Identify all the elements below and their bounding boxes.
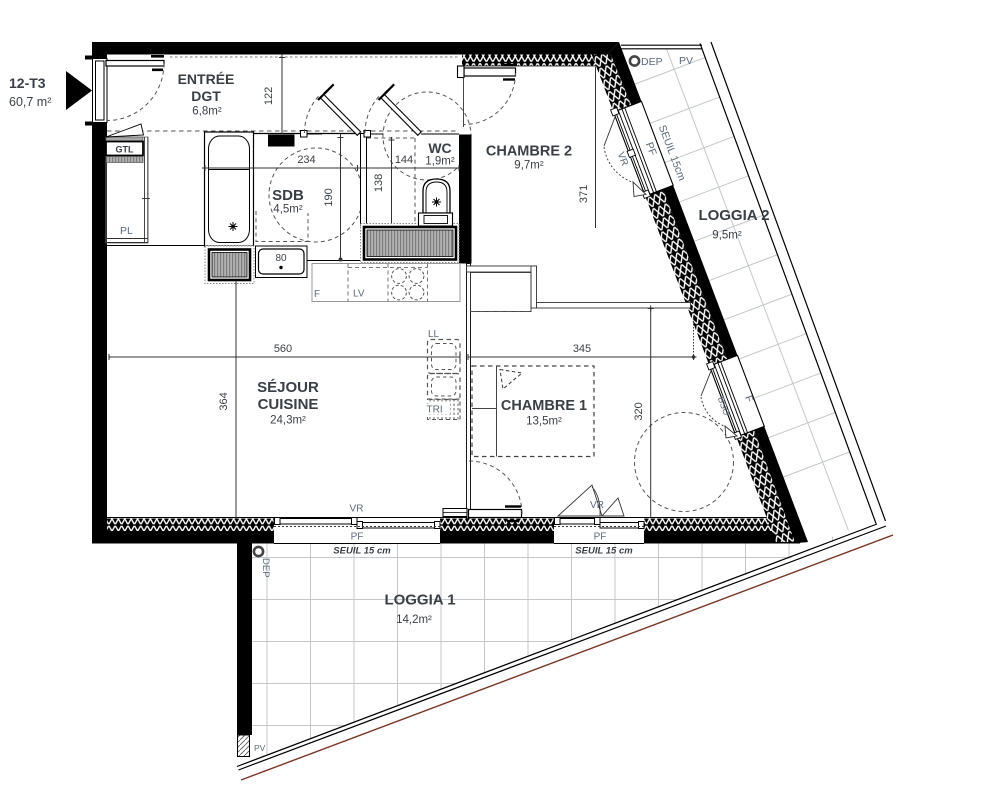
svg-text:371: 371	[578, 185, 590, 203]
svg-text:PV: PV	[254, 743, 266, 753]
svg-text:6,8m²: 6,8m²	[192, 106, 222, 118]
svg-text:TRI: TRI	[427, 405, 443, 416]
svg-text:364: 364	[218, 392, 230, 410]
svg-text:60,7 m²: 60,7 m²	[9, 95, 51, 109]
svg-text:4,5m²: 4,5m²	[273, 204, 303, 216]
svg-text:GTL: GTL	[116, 145, 134, 155]
svg-text:CHAMBRE 1: CHAMBRE 1	[501, 398, 587, 414]
svg-text:WC: WC	[428, 140, 451, 156]
svg-text:LV: LV	[353, 289, 365, 300]
svg-text:DEP: DEP	[260, 558, 271, 578]
svg-text:1,9m²: 1,9m²	[425, 156, 455, 168]
svg-text:9,5m²: 9,5m²	[712, 230, 742, 242]
svg-text:LOGGIA 2: LOGGIA 2	[698, 207, 769, 224]
svg-text:24,3m²: 24,3m²	[270, 415, 306, 427]
svg-text:80: 80	[275, 253, 287, 264]
svg-text:ENTRÉE: ENTRÉE	[178, 71, 235, 87]
svg-text:PL: PL	[120, 225, 133, 237]
svg-text:13,5m²: 13,5m²	[526, 416, 562, 428]
svg-text:138: 138	[373, 174, 385, 192]
svg-text:234: 234	[297, 154, 315, 166]
svg-text:CHAMBRE 2: CHAMBRE 2	[486, 144, 572, 160]
svg-text:14,2m²: 14,2m²	[396, 614, 432, 626]
svg-text:345: 345	[573, 343, 591, 355]
svg-text:560: 560	[274, 343, 292, 355]
svg-text:PF: PF	[351, 532, 364, 543]
svg-text:144: 144	[395, 154, 413, 166]
svg-text:PF: PF	[594, 532, 607, 543]
svg-text:SDB: SDB	[272, 187, 304, 204]
svg-text:12-T3: 12-T3	[9, 75, 46, 91]
svg-text:SÉJOUR: SÉJOUR	[257, 379, 319, 396]
svg-text:DGT: DGT	[191, 88, 221, 104]
svg-text:SEUIL 15 cm: SEUIL 15 cm	[333, 546, 391, 557]
svg-text:190: 190	[323, 188, 335, 206]
svg-text:DEP: DEP	[641, 56, 663, 68]
svg-text:VR: VR	[350, 504, 364, 515]
svg-text:F: F	[314, 289, 320, 300]
svg-text:LL: LL	[428, 329, 440, 340]
svg-text:LOGGIA 1: LOGGIA 1	[384, 592, 455, 609]
svg-text:SEUIL 15 cm: SEUIL 15 cm	[575, 546, 633, 557]
svg-text:122: 122	[263, 87, 275, 105]
svg-text:VR: VR	[590, 500, 604, 511]
svg-text:PV: PV	[679, 55, 693, 67]
svg-text:CUISINE: CUISINE	[258, 396, 319, 413]
svg-text:320: 320	[633, 402, 645, 420]
svg-text:9,7m²: 9,7m²	[514, 160, 544, 172]
